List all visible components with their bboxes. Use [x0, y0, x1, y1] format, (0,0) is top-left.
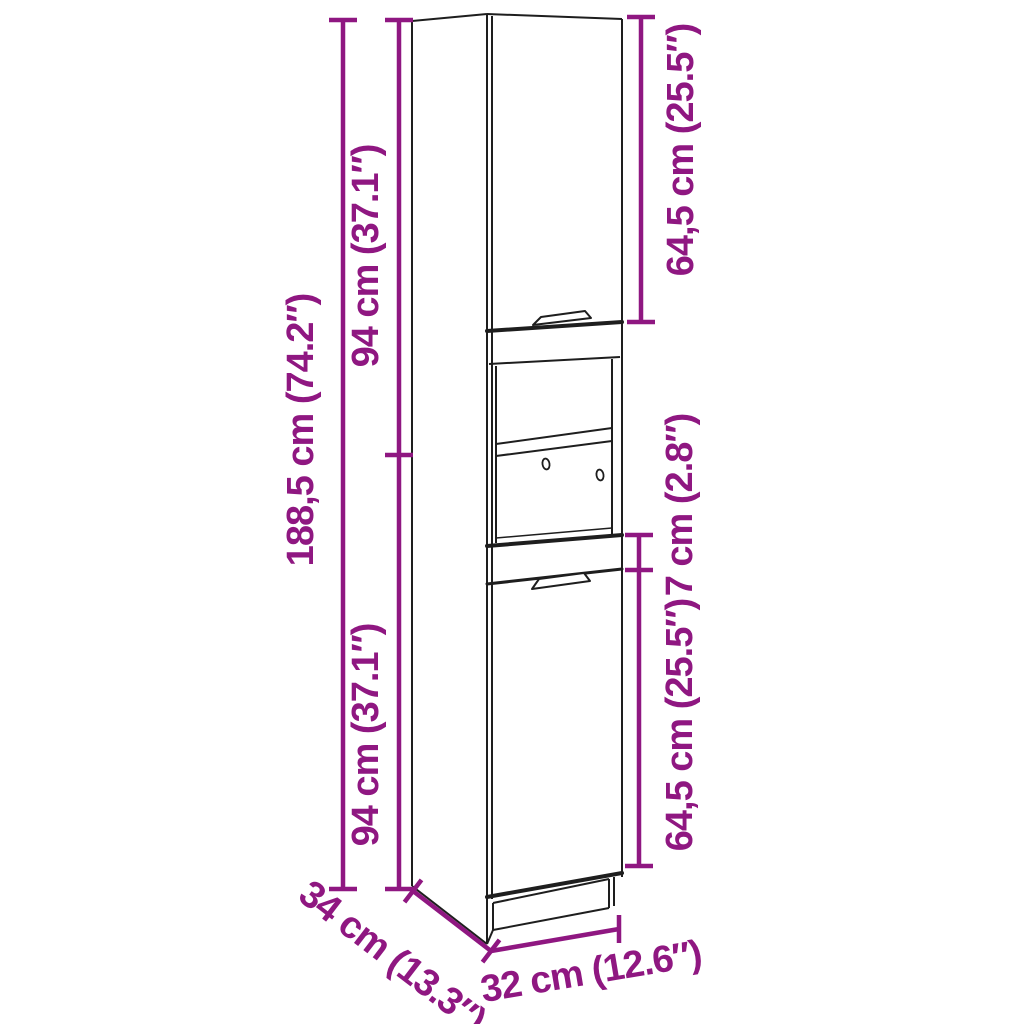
middle-shelf-top-edge — [496, 428, 612, 444]
dimension-line — [627, 17, 655, 322]
dimension-label-lower-section: 94 cm (37.1″) — [345, 624, 387, 847]
cabinet-drawing — [412, 14, 622, 944]
dimension-width: 32 cm (12.6″) — [478, 915, 705, 1011]
dimension-label-total-height: 188,5 cm (74.2″) — [280, 294, 322, 567]
dimension-line — [385, 20, 413, 455]
dimension-line — [491, 915, 619, 951]
plinth-bottom-edge — [493, 908, 609, 930]
dimension-label-upper-section: 94 cm (37.1″) — [345, 145, 387, 368]
dimension-line — [385, 455, 413, 889]
shelf-pin-hole — [596, 469, 605, 481]
dimension-label-lower-door: 64,5 cm (25.5″) — [659, 599, 701, 851]
middle-shelf-bottom-edge — [496, 441, 612, 456]
lower-door — [487, 569, 622, 897]
dimension-diagram: 188,5 cm (74.2″) 94 cm (37.1″) 94 cm (37… — [0, 0, 1024, 1024]
lower-door-handle — [532, 573, 590, 589]
dimension-upper-section: 94 cm (37.1″) — [345, 20, 413, 455]
open-shelf-compartment — [487, 359, 622, 546]
dimension-depth: 34 cm (13.3″) — [291, 873, 500, 1024]
dimension-middle-gap: 7 cm (2.8″) 64,5 cm (25.5″) — [625, 414, 701, 866]
cabinet-carcass-outline — [412, 14, 622, 944]
upper-door — [487, 311, 622, 331]
dimension-label-middle-gap: 7 cm (2.8″) — [659, 414, 701, 597]
dimension-line — [625, 535, 653, 866]
side-panel-bottom-edge — [412, 886, 487, 944]
dimension-label-width: 32 cm (12.6″) — [478, 933, 705, 1011]
dimension-label-upper-door: 64,5 cm (25.5″) — [660, 24, 702, 276]
side-panel-top-edge — [412, 14, 487, 21]
upper-rail-bottom-edge — [489, 357, 620, 364]
lower-door-bottom-edge — [487, 873, 622, 897]
cabinet-dimension-drawing: 188,5 cm (74.2″) 94 cm (37.1″) 94 cm (37… — [0, 0, 1024, 1024]
dimension-lower-section: 94 cm (37.1″) — [345, 455, 413, 889]
dimension-label-depth: 34 cm (13.3″) — [291, 873, 493, 1024]
dimension-upper-door: 64,5 cm (25.5″) — [627, 17, 702, 322]
shelf-pin-hole — [542, 458, 551, 470]
front-top-edge — [487, 14, 622, 19]
